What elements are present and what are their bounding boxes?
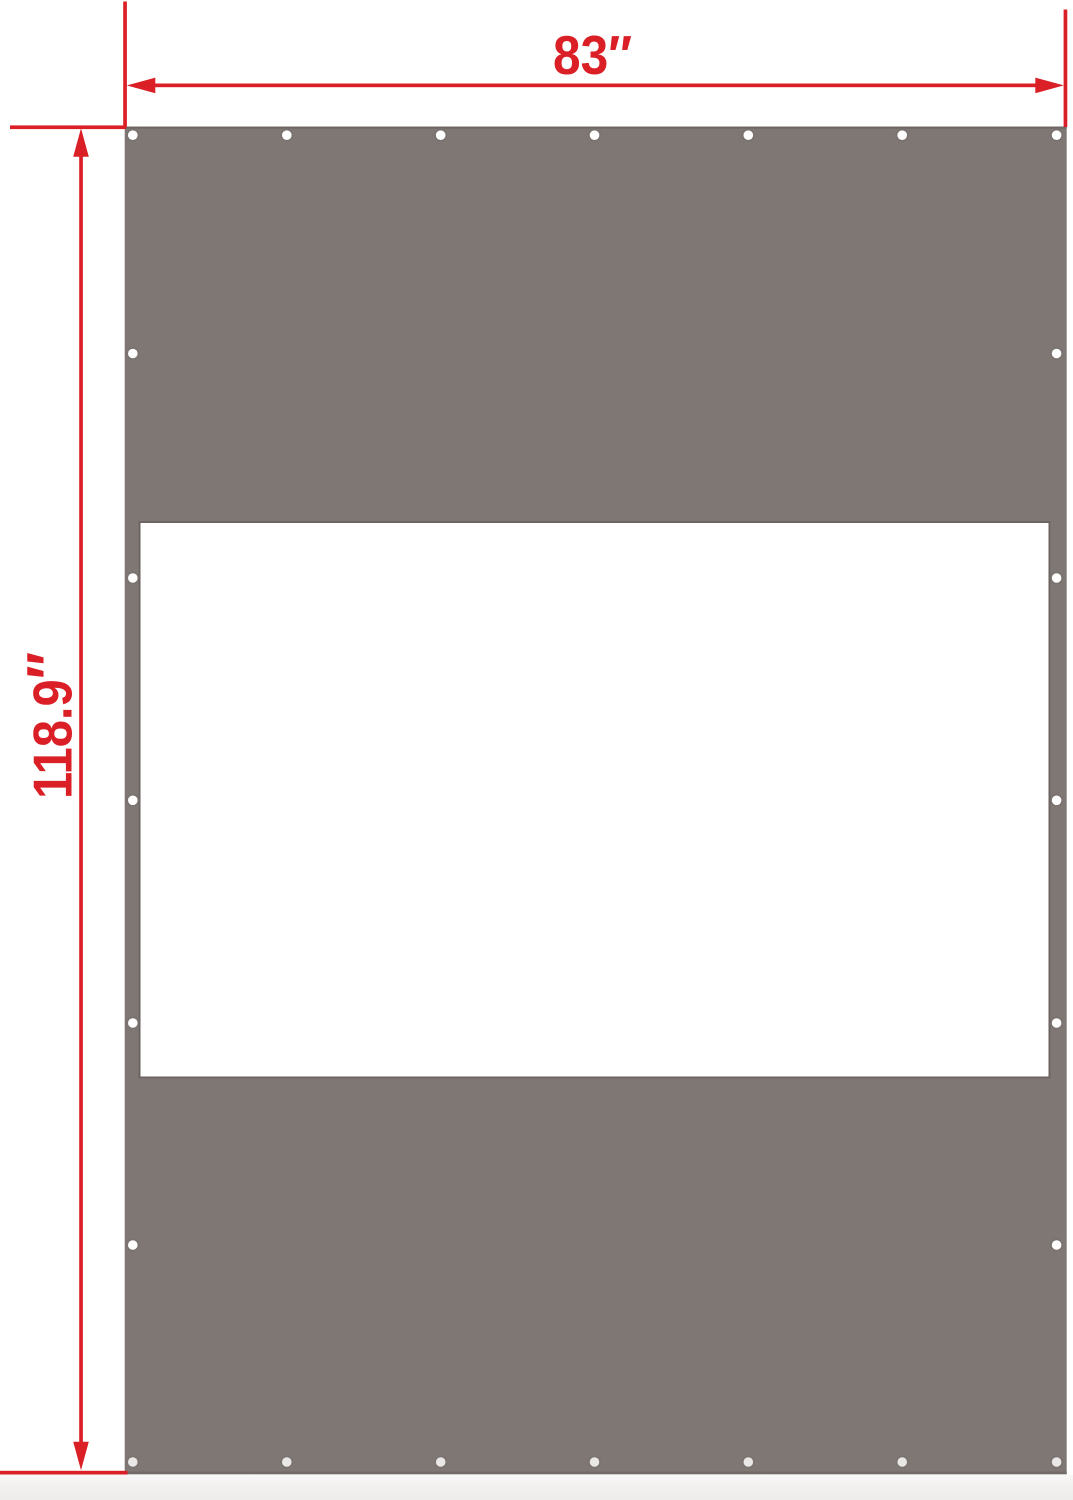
svg-text:83″: 83″ <box>553 24 632 86</box>
svg-text:118.9″: 118.9″ <box>14 652 86 799</box>
